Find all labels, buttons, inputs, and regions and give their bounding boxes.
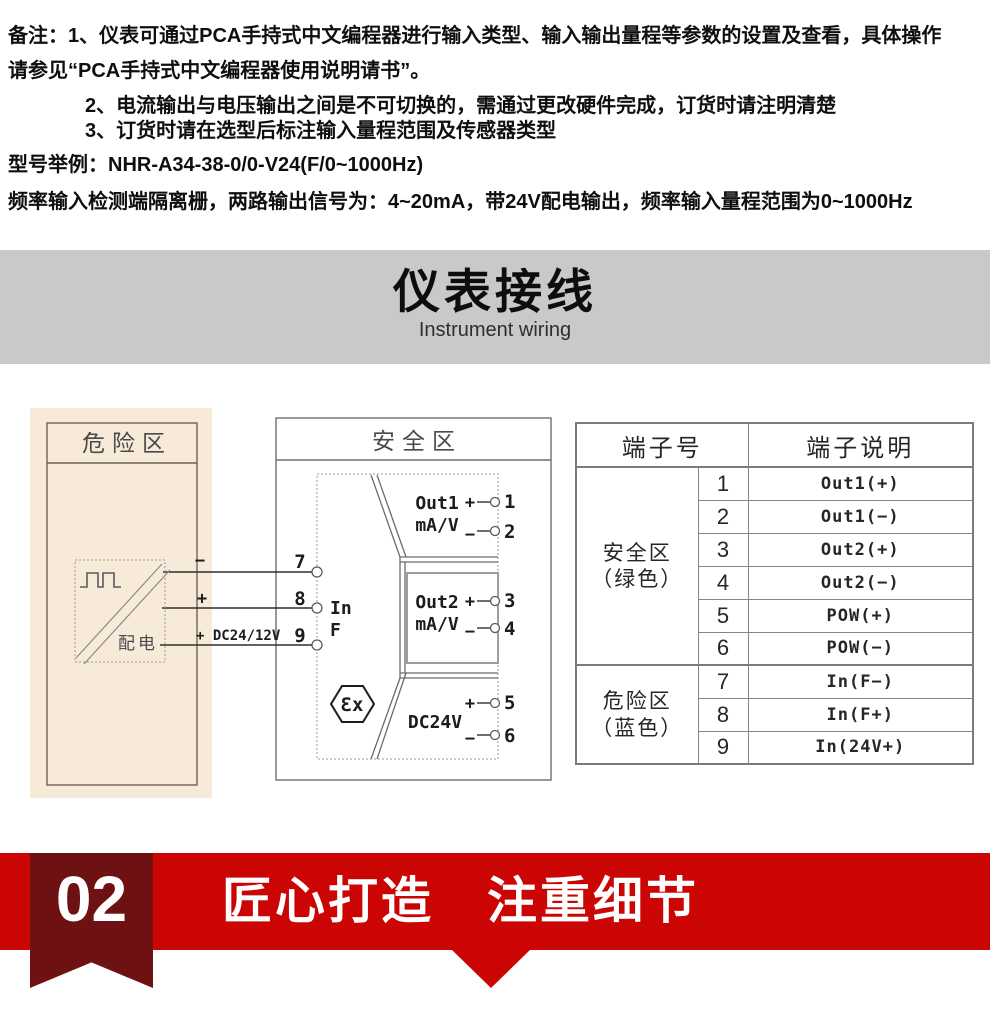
terminal-circle-6 — [491, 731, 500, 740]
note-line-3: 2、电流输出与电压输出之间是不可切换的，需通过更改硬件完成，订货时请注明清楚 — [85, 92, 836, 120]
note-line-4: 3、订货时请在选型后标注输入量程范围及传感器类型 — [85, 117, 556, 145]
footer-slogan: 匠心打造 注重细节 — [222, 853, 699, 950]
terminal-4-number: 4 — [504, 618, 515, 640]
note-line-5: 型号举例：NHR-A34-38-0/0-V24(F/0~1000Hz) — [8, 151, 423, 179]
out2-minus-sign: − — [465, 622, 475, 642]
terminal-circle-8 — [312, 603, 322, 613]
terminal-circle-3 — [491, 597, 500, 606]
out1-unit: mA/V — [415, 515, 459, 536]
section-number: 02 — [30, 853, 153, 931]
note-line-1: 备注：1、仪表可通过PCA手持式中文编程器进行输入类型、输入输出量程等参数的设置… — [8, 22, 941, 50]
terminal-circle-2 — [491, 527, 500, 536]
footer-notch-triangle — [452, 950, 530, 988]
terminal-5-number: 5 — [504, 692, 515, 714]
terminal-description: Out1(−) — [748, 500, 973, 533]
table-header-terminal-desc: 端子说明 — [748, 423, 973, 467]
group-hazard-zone-color: （蓝色） — [591, 716, 683, 740]
terminal-description: In(F+) — [748, 698, 973, 731]
terminal-number: 8 — [698, 698, 748, 731]
terminal-table: 端子号 端子说明 安全区 （绿色） 1 Out1(+) 2 Out1(−) 3 — [575, 422, 974, 765]
dc24v-plus-sign: + — [465, 694, 475, 714]
terminal-number: 1 — [698, 467, 748, 500]
terminal-description: Out2(+) — [748, 533, 973, 566]
note-line-2: 请参见“PCA手持式中文编程器使用说明请书”。 — [8, 57, 430, 85]
terminal-circle-5 — [491, 699, 500, 708]
wire2-polarity-label: + — [197, 589, 207, 609]
section-title: 仪表接线 — [0, 250, 990, 318]
hazard-panel-background — [30, 408, 212, 798]
terminal-number: 4 — [698, 566, 748, 599]
terminal-3-number: 3 — [504, 590, 515, 612]
group-hazard-zone: 危险区 （蓝色） — [576, 665, 698, 764]
group-safe-zone: 安全区 （绿色） — [576, 467, 698, 665]
note-line-6: 频率输入检测端隔离栅，两路输出信号为：4~20mA，带24V配电输出，频率输入量… — [8, 188, 913, 216]
hazard-zone-title: 危险区 — [82, 431, 172, 456]
sensor-power-label: 配电 — [118, 634, 158, 653]
terminal-description: In(F−) — [748, 665, 973, 698]
terminal-9-number: 9 — [294, 625, 305, 647]
terminal-2-number: 2 — [504, 521, 515, 543]
terminal-circle-7 — [312, 567, 322, 577]
terminal-description: POW(−) — [748, 632, 973, 665]
terminal-8-number: 8 — [294, 588, 305, 610]
table-row: 安全区 （绿色） 1 Out1(+) — [576, 467, 973, 500]
terminal-number: 7 — [698, 665, 748, 698]
out2-name: Out2 — [415, 592, 458, 613]
terminal-description: In(24V+) — [748, 731, 973, 764]
terminal-description: Out2(−) — [748, 566, 973, 599]
wiring-diagram-section: 危险区 安全区 − + + DC24/12V — [0, 400, 990, 812]
terminal-number: 5 — [698, 599, 748, 632]
wire1-polarity-label: − — [195, 551, 205, 571]
table-header-terminal-no: 端子号 — [576, 423, 748, 467]
terminal-circle-4 — [491, 624, 500, 633]
section-banner: 仪表接线 Instrument wiring — [0, 250, 990, 364]
safe-zone-title: 安全区 — [372, 429, 462, 454]
terminal-7-number: 7 — [294, 551, 305, 573]
group-safe-zone-color: （绿色） — [591, 567, 683, 591]
out1-minus-sign: − — [465, 525, 475, 545]
input-label-in: In — [330, 598, 352, 619]
section-number-ribbon: 02 — [30, 853, 153, 988]
terminal-number: 3 — [698, 533, 748, 566]
out2-plus-sign: + — [465, 592, 475, 612]
terminal-number: 2 — [698, 500, 748, 533]
terminal-6-number: 6 — [504, 725, 515, 747]
out1-plus-sign: + — [465, 493, 475, 513]
terminal-number: 9 — [698, 731, 748, 764]
section-subtitle: Instrument wiring — [0, 319, 990, 342]
terminal-description: POW(+) — [748, 599, 973, 632]
ex-label: Ɛx — [341, 694, 364, 716]
terminal-circle-9 — [312, 640, 322, 650]
terminal-1-number: 1 — [504, 491, 515, 513]
out1-name: Out1 — [415, 493, 458, 514]
table-row: 危险区 （蓝色） 7 In(F−) — [576, 665, 973, 698]
wire3-power-label: + DC24/12V — [196, 628, 281, 644]
dc24v-name: DC24V — [408, 712, 462, 733]
dc24v-minus-sign: − — [465, 729, 475, 749]
out2-unit: mA/V — [415, 614, 459, 635]
product-page: 备注：1、仪表可通过PCA手持式中文编程器进行输入类型、输入输出量程等参数的设置… — [0, 0, 990, 1017]
group-hazard-zone-name: 危险区 — [603, 689, 672, 713]
terminal-description: Out1(+) — [748, 467, 973, 500]
input-label-f: F — [330, 620, 341, 641]
terminal-circle-1 — [491, 498, 500, 507]
terminal-number: 6 — [698, 632, 748, 665]
group-safe-zone-name: 安全区 — [603, 541, 672, 565]
